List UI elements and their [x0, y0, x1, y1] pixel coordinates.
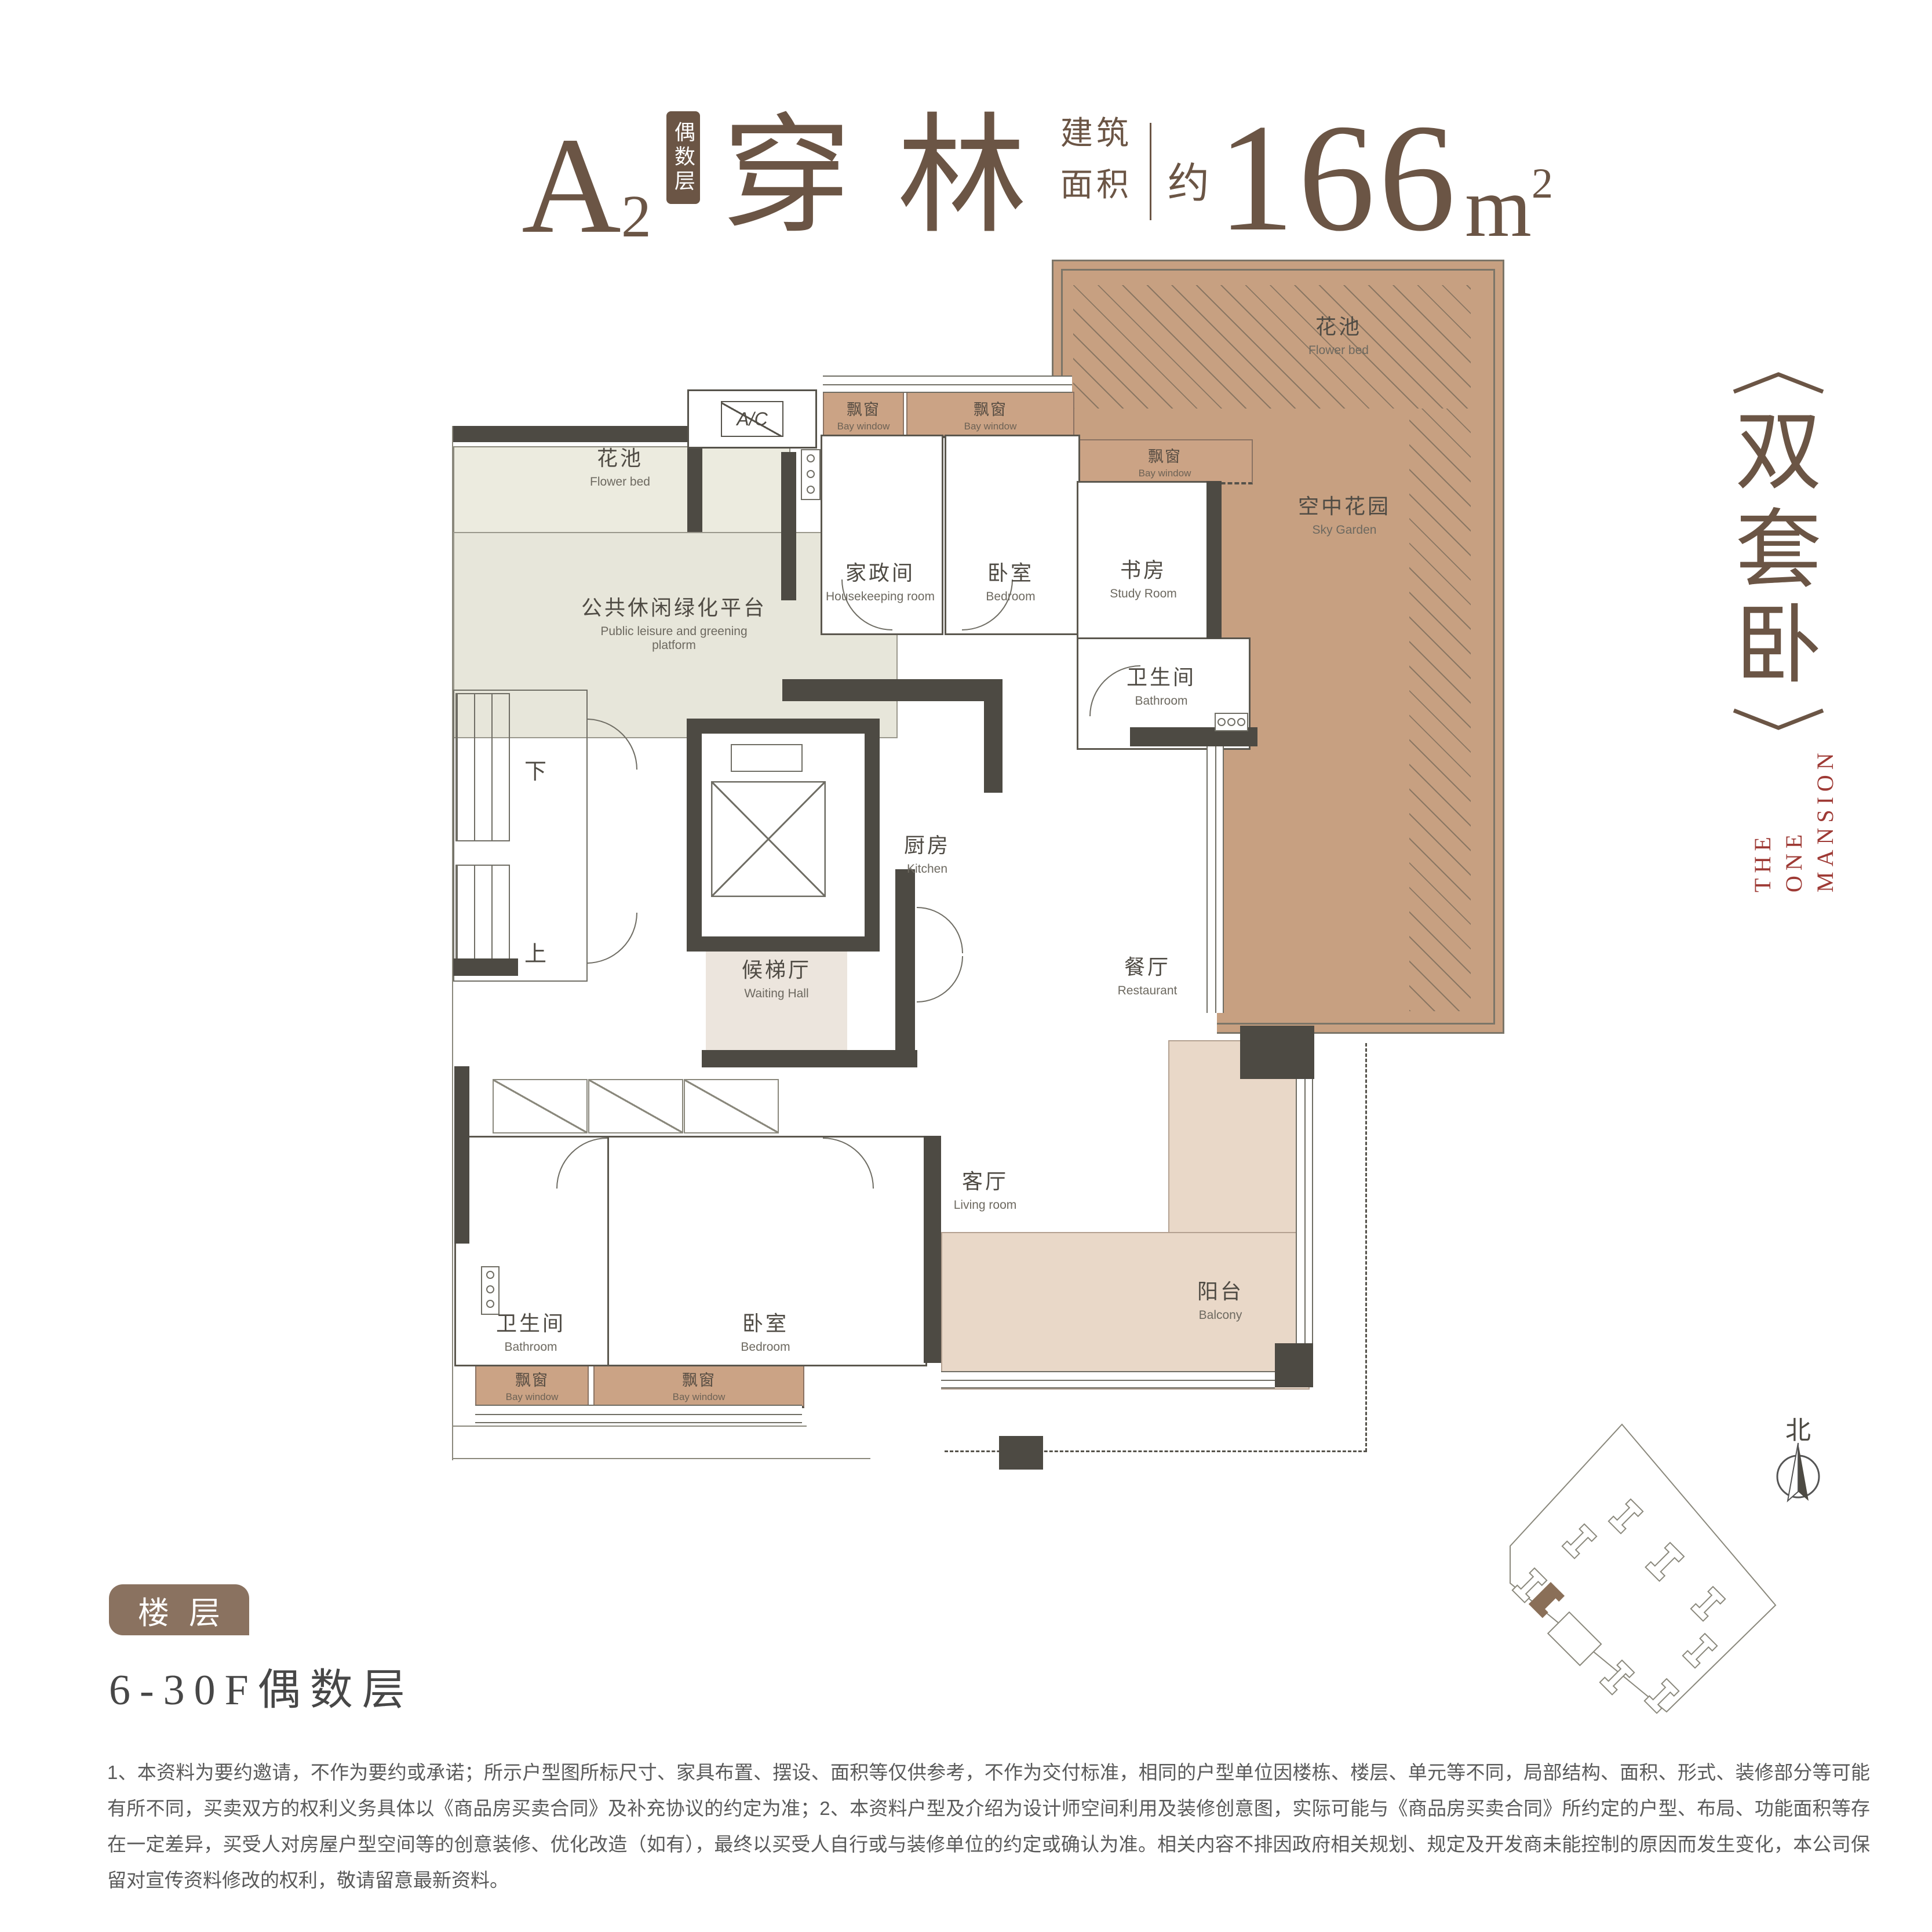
boundary-line — [453, 1458, 870, 1459]
floor-range: 6-30F偶数层 — [109, 1655, 414, 1717]
stair-down-label: 下 — [524, 753, 546, 785]
brand-line1: THE — [1747, 713, 1778, 892]
bay-window-4: 飘窗 Bay window — [475, 1363, 589, 1408]
stair-flight-upper — [455, 693, 510, 841]
bay-window-1: 飘窗 Bay window — [823, 392, 904, 438]
label-platform: 公共休闲绿化平台 Public leisure and greening pla… — [581, 591, 767, 652]
label-kitchen: 厨房 Kitchen — [861, 829, 994, 876]
stair-flight-lower — [455, 865, 510, 962]
wall-pillar — [1275, 1343, 1313, 1387]
bay-window-2: 飘窗 Bay window — [906, 392, 1074, 438]
label-study: 书房 Study Room — [1077, 553, 1210, 601]
wardrobe — [684, 1079, 779, 1133]
label-sky-garden: 空中花园 Sky Garden — [1257, 490, 1431, 537]
floor-badge: 楼层 — [109, 1584, 249, 1635]
label-housekeeping: 家政间 Housekeeping room — [814, 556, 947, 604]
label-bedroom-bottom: 卧室 Bedroom — [699, 1307, 832, 1354]
label-bathroom-bottom: 卫生间 Bathroom — [464, 1307, 597, 1354]
unit-number: 2 — [621, 187, 651, 247]
unit-letter: A — [522, 110, 621, 262]
elevator-panel — [731, 744, 803, 772]
bay-window-label-cn: 飘窗 — [682, 1368, 716, 1390]
wall-pillar — [999, 1436, 1043, 1470]
brand-line2: ONE MANSION — [1778, 713, 1841, 892]
wall-pillar — [1240, 1026, 1314, 1079]
title-divider — [1150, 123, 1151, 220]
label-bathroom-top: 卫生间 Bathroom — [1095, 661, 1228, 708]
door-arc — [586, 913, 637, 964]
bay-window-3: 飘窗 Bay window — [1077, 439, 1253, 484]
wall — [453, 426, 687, 442]
brand-name: THE ONE MANSION — [1747, 713, 1811, 892]
area-label: 建筑 面积 — [1060, 108, 1132, 212]
bay-window-label-en: Bay window — [964, 421, 1017, 432]
bay-window-label-cn: 飘窗 — [974, 397, 1007, 420]
approx-label: 约 — [1168, 149, 1209, 210]
label-restaurant: 餐厅 Restaurant — [1081, 950, 1214, 998]
bay-window-5: 飘窗 Bay window — [593, 1363, 804, 1408]
stair-up-label: 上 — [524, 936, 546, 968]
balcony-window-bottom — [941, 1371, 1275, 1388]
bay-window-label-en: Bay window — [673, 1391, 726, 1403]
label-waiting-hall: 候梯厅 Waiting Hall — [710, 953, 843, 1001]
ac-unit: A/C — [687, 389, 817, 449]
balcony-window-right — [1296, 1079, 1313, 1343]
wall — [781, 452, 796, 600]
stove-icon — [1215, 713, 1248, 731]
wall — [895, 869, 915, 1052]
window-sill-bottom — [475, 1405, 802, 1423]
bay-window-label-en: Bay window — [1139, 468, 1191, 479]
poster-canvas: A2 偶数层 穿林 建筑 面积 约 166 m2 双 套 卧 THE ONE M… — [0, 0, 1932, 1932]
bay-window-label-en: Bay window — [506, 1391, 559, 1403]
area-label-bottom: 面积 — [1060, 160, 1132, 212]
compass-icon — [1773, 1436, 1823, 1511]
page-title: A2 偶数层 穿林 建筑 面积 约 166 m2 — [522, 87, 1553, 255]
side-char-2: 套 — [1735, 508, 1822, 595]
label-living-room: 客厅 Living room — [918, 1165, 1052, 1212]
chevron-top-icon — [1731, 371, 1825, 394]
ac-label: A/C — [721, 401, 783, 437]
wall — [702, 1050, 917, 1067]
wardrobe — [493, 1079, 588, 1133]
wall — [984, 701, 1003, 793]
boundary-line — [453, 1426, 807, 1427]
area-value: 166 — [1217, 101, 1459, 255]
area-unit: m2 — [1465, 165, 1553, 250]
wardrobe — [588, 1079, 683, 1133]
bay-window-label-en: Bay window — [837, 421, 890, 432]
disclaimer-text: 1、本资料为要约邀请，不作为要约或承诺；所示户型图所标尺寸、家具布置、摆设、面积… — [107, 1755, 1870, 1898]
bay-window-label-cn: 飘窗 — [515, 1368, 549, 1390]
label-bedroom-top: 卧室 Bedroom — [944, 556, 1077, 604]
chevron-bottom-icon — [1731, 708, 1825, 731]
bay-window-label-cn: 飘窗 — [847, 397, 880, 420]
area-unit-m: m — [1465, 160, 1532, 255]
area-unit-sup: 2 — [1532, 162, 1553, 205]
unit-code: A2 — [522, 117, 651, 255]
label-flower-bed-left: 花池 Flower bed — [545, 442, 695, 489]
label-garden-flowerbed: 花池 Flower bed — [1252, 310, 1426, 358]
elevator-x-icon — [711, 781, 826, 897]
label-balcony: 阳台 Balcony — [1154, 1275, 1287, 1322]
bay-window-label-cn: 飘窗 — [1148, 444, 1182, 466]
wall — [782, 679, 1003, 701]
side-char-1: 双 — [1735, 409, 1822, 496]
unit-name: 穿林 — [722, 112, 1072, 242]
stove-icon — [801, 449, 821, 500]
area-label-top: 建筑 — [1060, 108, 1132, 161]
even-floor-badge: 偶数层 — [666, 111, 700, 204]
elevator-shaft — [687, 719, 880, 952]
wall — [454, 1066, 469, 1244]
wall — [453, 958, 518, 976]
window-top — [823, 376, 1072, 393]
side-char-3: 卧 — [1735, 603, 1822, 690]
projection-dash-vertical — [1365, 1043, 1367, 1452]
highlighted-building — [1529, 1582, 1565, 1618]
